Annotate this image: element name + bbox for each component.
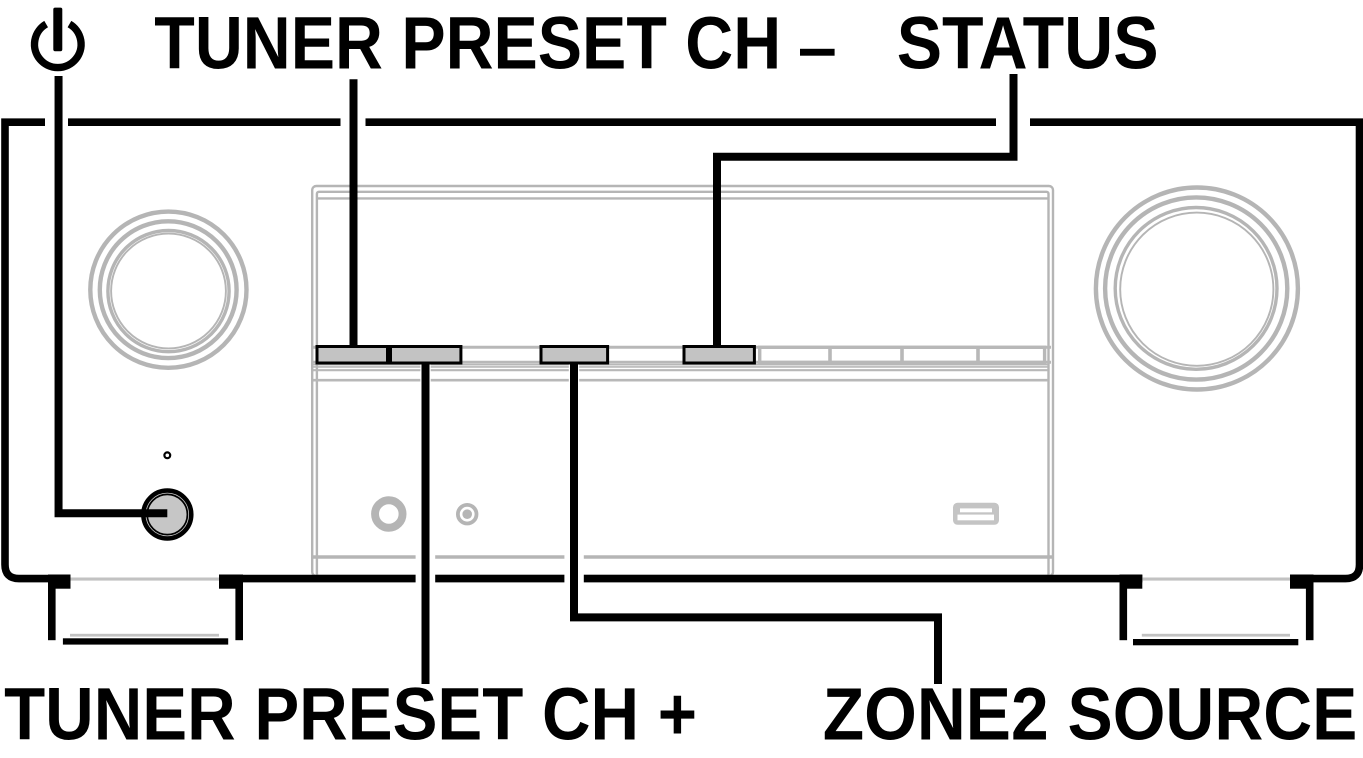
svg-text:ZONE2 SOURCE: ZONE2 SOURCE <box>823 674 1358 756</box>
svg-text:STATUS: STATUS <box>897 3 1159 85</box>
svg-text:TUNER PRESET CH +: TUNER PRESET CH + <box>4 673 697 756</box>
svg-text:TUNER PRESET CH: TUNER PRESET CH <box>154 1 781 84</box>
